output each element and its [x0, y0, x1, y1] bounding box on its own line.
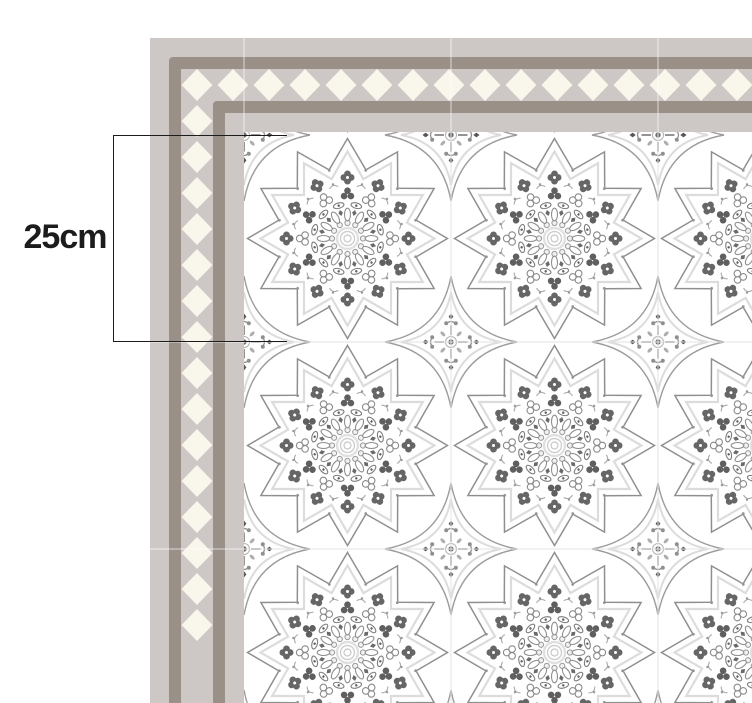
rug-size-illustration: 25cm: [0, 0, 752, 703]
rug-graphic: [0, 0, 752, 703]
tile-field: [244, 132, 752, 703]
measurement-label: 25cm: [22, 220, 108, 256]
measurement-bracket: [113, 135, 287, 342]
tile-pattern: [244, 132, 752, 703]
